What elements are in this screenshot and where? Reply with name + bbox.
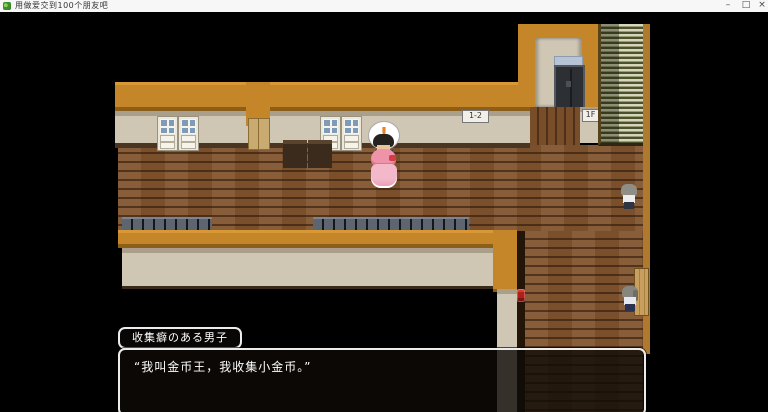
elevator-door[interactable] xyxy=(554,65,585,111)
window-glass xyxy=(181,119,196,134)
lower-wall-column xyxy=(493,230,517,292)
close-icon[interactable]: × xyxy=(754,0,768,12)
app-icon xyxy=(3,2,11,10)
maximize-icon[interactable]: □ xyxy=(738,0,754,12)
window xyxy=(178,116,199,151)
window-panel xyxy=(181,142,196,149)
classroom-door[interactable] xyxy=(248,118,270,150)
floor-sign: 1F xyxy=(582,109,599,122)
player-ribbon xyxy=(389,155,396,161)
game-window: 用做爱交到100个朋友吧 – □ × xyxy=(0,0,768,412)
player-character[interactable] xyxy=(369,149,399,190)
window-panel xyxy=(344,142,359,149)
door-seam xyxy=(258,119,259,149)
game-scene[interactable]: 1-2 1F xyxy=(0,12,768,412)
window-title: 用做爱交到100个朋友吧 xyxy=(15,0,108,12)
cabinet xyxy=(283,140,307,168)
window xyxy=(341,116,362,151)
cabinet xyxy=(308,140,332,168)
elevator-landing-floor xyxy=(530,107,580,145)
window xyxy=(157,116,178,151)
speaker-name: 收集癖のある男子 xyxy=(120,329,240,347)
elevator-panel xyxy=(566,81,571,87)
message-window[interactable]: “我叫金币王，我收集小金币。” xyxy=(118,348,646,412)
npc-legs xyxy=(625,304,635,311)
elevator-door-seam xyxy=(570,69,572,107)
fire-extinguisher xyxy=(517,289,525,302)
npc-corridor-1[interactable] xyxy=(620,184,638,210)
staircase[interactable] xyxy=(598,24,648,146)
upper-roof-band xyxy=(115,82,530,111)
staircase-shadow xyxy=(601,24,619,143)
window-glass xyxy=(323,119,338,134)
lower-wall xyxy=(122,248,497,289)
window-glass xyxy=(344,119,359,134)
window-panel xyxy=(160,135,175,142)
window-panel xyxy=(344,135,359,142)
npc-legs xyxy=(624,202,634,209)
room-sign: 1-2 xyxy=(462,110,489,123)
window-glass xyxy=(160,119,175,134)
message-text: “我叫金币王，我收集小金币。” xyxy=(134,358,644,375)
window-pair-1 xyxy=(157,116,199,150)
player-dress xyxy=(371,164,397,188)
window-panel xyxy=(160,142,175,149)
lower-roof-band xyxy=(118,230,517,248)
speaker-name-box: 收集癖のある男子 xyxy=(118,327,242,349)
window-panel xyxy=(181,135,196,142)
npc-corridor-2[interactable] xyxy=(621,286,639,312)
minimize-icon[interactable]: – xyxy=(720,0,736,12)
